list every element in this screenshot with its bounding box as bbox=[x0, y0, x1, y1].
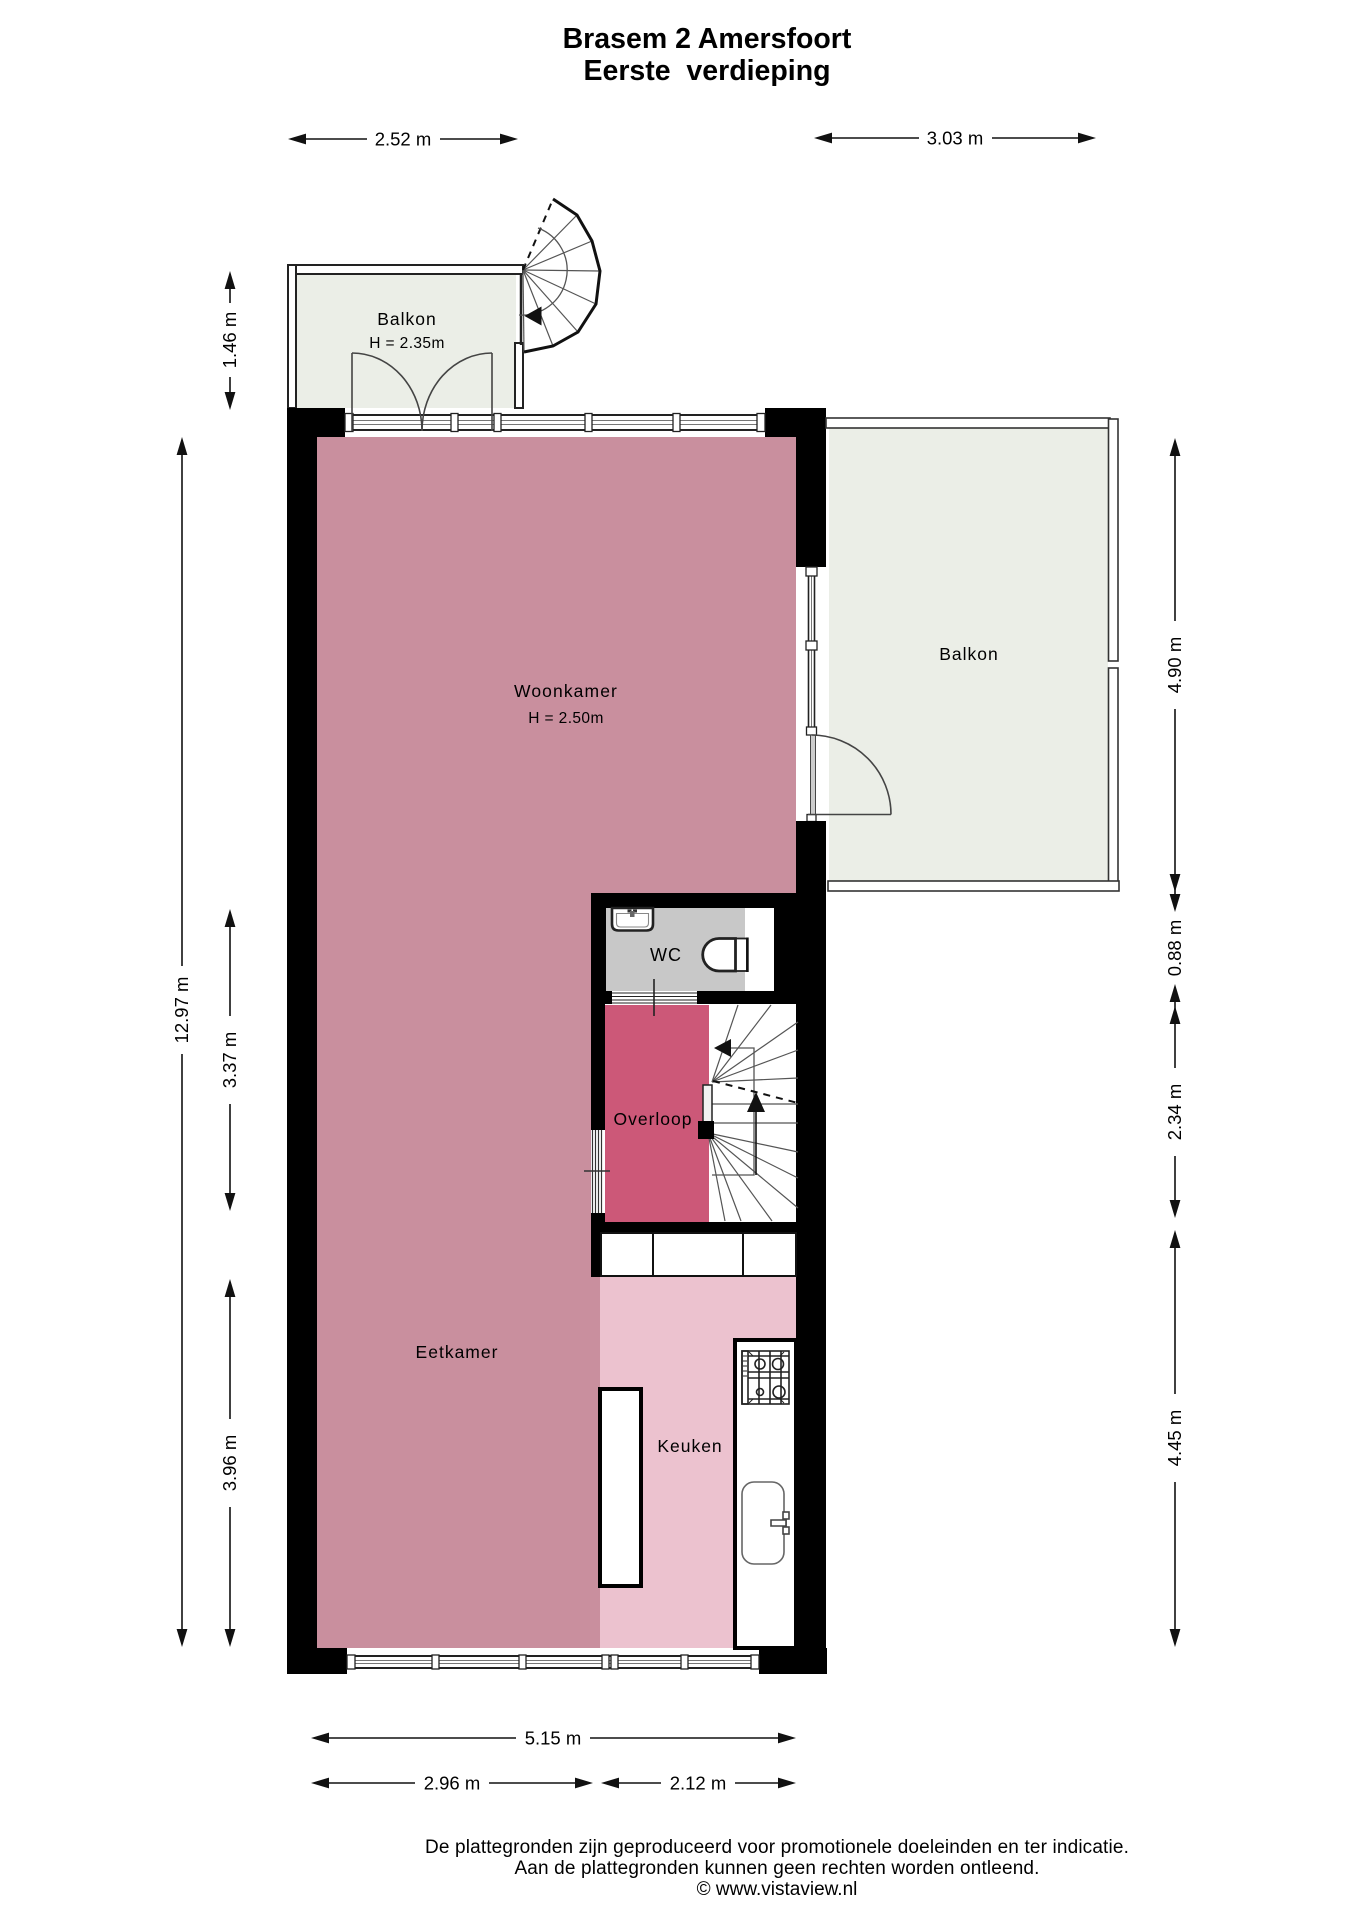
svg-text:WC: WC bbox=[650, 945, 682, 965]
svg-text:Balkon: Balkon bbox=[377, 309, 437, 329]
svg-text:2.96 m: 2.96 m bbox=[424, 1773, 481, 1794]
svg-text:2.52 m: 2.52 m bbox=[375, 129, 432, 150]
svg-text:1.46 m: 1.46 m bbox=[219, 312, 240, 369]
svg-text:Overloop: Overloop bbox=[613, 1109, 692, 1129]
svg-text:12.97 m: 12.97 m bbox=[171, 977, 192, 1044]
svg-text:4.45 m: 4.45 m bbox=[1164, 1410, 1185, 1467]
svg-text:© www.vistaview.nl: © www.vistaview.nl bbox=[697, 1879, 858, 1900]
svg-text:H = 2.50m: H = 2.50m bbox=[528, 710, 604, 727]
svg-text:3.03 m: 3.03 m bbox=[927, 128, 984, 149]
svg-text:3.37 m: 3.37 m bbox=[219, 1032, 240, 1089]
svg-text:De plattegronden zijn geproduc: De plattegronden zijn geproduceerd voor … bbox=[425, 1837, 1129, 1858]
svg-text:Brasem 2 Amersfoort: Brasem 2 Amersfoort bbox=[563, 23, 852, 55]
svg-text:5.15 m: 5.15 m bbox=[525, 1728, 582, 1749]
svg-text:Eerste verdieping: Eerste verdieping bbox=[583, 55, 830, 87]
svg-text:Keuken: Keuken bbox=[657, 1436, 722, 1456]
svg-text:Aan de plattegronden kunnen ge: Aan de plattegronden kunnen geen rechten… bbox=[514, 1858, 1039, 1879]
svg-text:2.34 m: 2.34 m bbox=[1164, 1084, 1185, 1141]
svg-text:H = 2.35m: H = 2.35m bbox=[369, 335, 445, 352]
svg-text:Eetkamer: Eetkamer bbox=[416, 1342, 499, 1362]
svg-text:0.88 m: 0.88 m bbox=[1164, 920, 1185, 977]
svg-text:3.96 m: 3.96 m bbox=[219, 1435, 240, 1492]
svg-text:2.12 m: 2.12 m bbox=[670, 1773, 727, 1794]
svg-text:Balkon: Balkon bbox=[939, 644, 999, 664]
svg-text:Woonkamer: Woonkamer bbox=[514, 681, 618, 701]
svg-text:4.90 m: 4.90 m bbox=[1164, 637, 1185, 694]
